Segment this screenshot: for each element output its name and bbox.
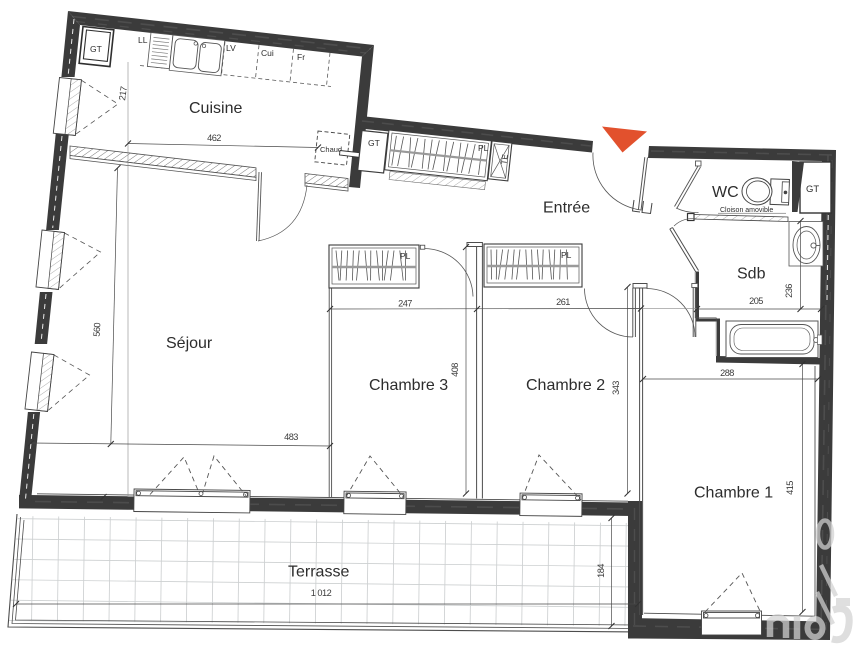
svg-text:462: 462: [207, 133, 221, 143]
svg-text:247: 247: [398, 299, 412, 309]
svg-text:GT: GT: [806, 184, 819, 195]
svg-text:Terrasse: Terrasse: [288, 564, 349, 581]
svg-text:236: 236: [784, 284, 794, 298]
svg-text:Fr: Fr: [297, 52, 305, 62]
svg-text:217: 217: [117, 86, 129, 101]
svg-text:PL: PL: [478, 143, 489, 153]
svg-text:GT: GT: [368, 138, 380, 148]
svg-text:Entrée: Entrée: [543, 200, 590, 217]
svg-text:288: 288: [720, 368, 734, 378]
svg-text:Sdb: Sdb: [737, 266, 766, 283]
svg-text:Cuisine: Cuisine: [189, 100, 242, 117]
svg-text:343: 343: [611, 381, 621, 395]
svg-text:Chambre 3: Chambre 3: [369, 377, 448, 394]
svg-text:Chambre 1: Chambre 1: [694, 485, 773, 502]
svg-text:LV: LV: [226, 43, 236, 53]
svg-text:Séjour: Séjour: [166, 335, 213, 352]
svg-text:TE: TE: [500, 154, 510, 165]
svg-text:Cui: Cui: [261, 48, 274, 58]
svg-text:PL: PL: [561, 250, 572, 260]
svg-text:483: 483: [284, 432, 298, 442]
svg-text:Chambre 2: Chambre 2: [526, 377, 605, 394]
svg-text:PL: PL: [400, 251, 411, 261]
svg-text:415: 415: [785, 481, 795, 495]
svg-text:261: 261: [556, 297, 570, 307]
svg-text:408: 408: [450, 363, 460, 377]
svg-text:WC: WC: [712, 184, 739, 201]
svg-text:205: 205: [749, 296, 763, 306]
svg-text:184: 184: [596, 564, 606, 578]
svg-text:560: 560: [92, 322, 103, 337]
svg-text:GT: GT: [90, 44, 102, 54]
svg-text:1 012: 1 012: [311, 588, 332, 598]
svg-text:LL: LL: [138, 35, 148, 45]
